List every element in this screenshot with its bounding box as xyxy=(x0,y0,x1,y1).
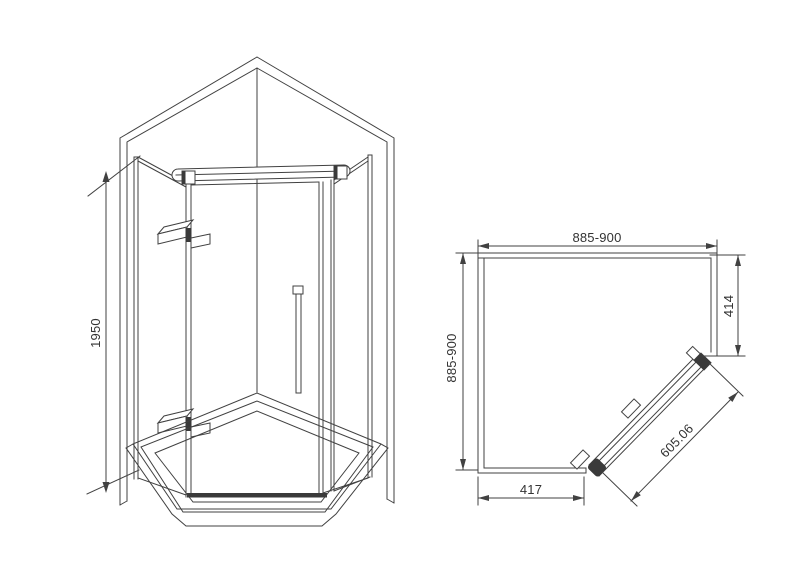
left-depth-arrow-down xyxy=(460,459,466,470)
door-handle xyxy=(293,286,303,393)
bottom-panel-dimension: 417 xyxy=(478,477,584,505)
height-dimension-label: 1950 xyxy=(88,318,103,348)
bottom-panel-arrow-left xyxy=(478,495,489,501)
support-bar-clamp-right-edge xyxy=(334,166,338,179)
support-bar-clamp-left-edge xyxy=(182,171,186,184)
height-dim-arrow-up xyxy=(103,171,110,182)
isometric-view: 1950 xyxy=(87,57,394,526)
door-threshold xyxy=(187,493,327,498)
room-walls xyxy=(120,57,394,505)
right-panel-dimension: 414 xyxy=(703,255,745,356)
top-support-bar xyxy=(172,165,350,184)
hinge-plate xyxy=(191,234,210,248)
plan-door xyxy=(571,346,712,477)
right-panel-label: 414 xyxy=(721,295,736,317)
left-depth-dim-lines xyxy=(456,253,477,470)
height-dimension: 1950 xyxy=(87,156,140,494)
top-width-arrow-right xyxy=(706,243,717,249)
door-width-dimension: 605.06 xyxy=(602,363,743,506)
shower-tray xyxy=(126,393,388,526)
left-depth-label: 885-900 xyxy=(444,333,459,382)
top-width-arrow-left xyxy=(478,243,489,249)
handle-bar xyxy=(296,294,301,393)
bottom-panel-arrow-right xyxy=(573,495,584,501)
left-depth-dimension: 885-900 xyxy=(444,253,477,470)
glass-panel-edges xyxy=(138,157,370,495)
right-panel-arrow-down xyxy=(735,345,741,356)
hinge-plate xyxy=(191,423,210,437)
top-width-label: 885-900 xyxy=(572,230,621,245)
height-dim-arrow-down xyxy=(103,482,110,493)
door-panel-lines xyxy=(589,355,707,476)
left-depth-arrow-up xyxy=(460,253,466,264)
top-width-dimension: 885-900 xyxy=(478,230,717,252)
frame-posts xyxy=(134,155,372,497)
bottom-panel-label: 417 xyxy=(520,482,542,497)
hinge-upper xyxy=(158,220,210,248)
handle-cap xyxy=(293,286,303,294)
plan-view: 885-900 885-900 414 605.06 417 xyxy=(444,230,745,506)
technical-drawing: 1950 885-900 885-900 xyxy=(0,0,800,566)
door-hinge-clamp-low xyxy=(571,450,590,469)
right-panel-arrow-up xyxy=(735,255,741,266)
